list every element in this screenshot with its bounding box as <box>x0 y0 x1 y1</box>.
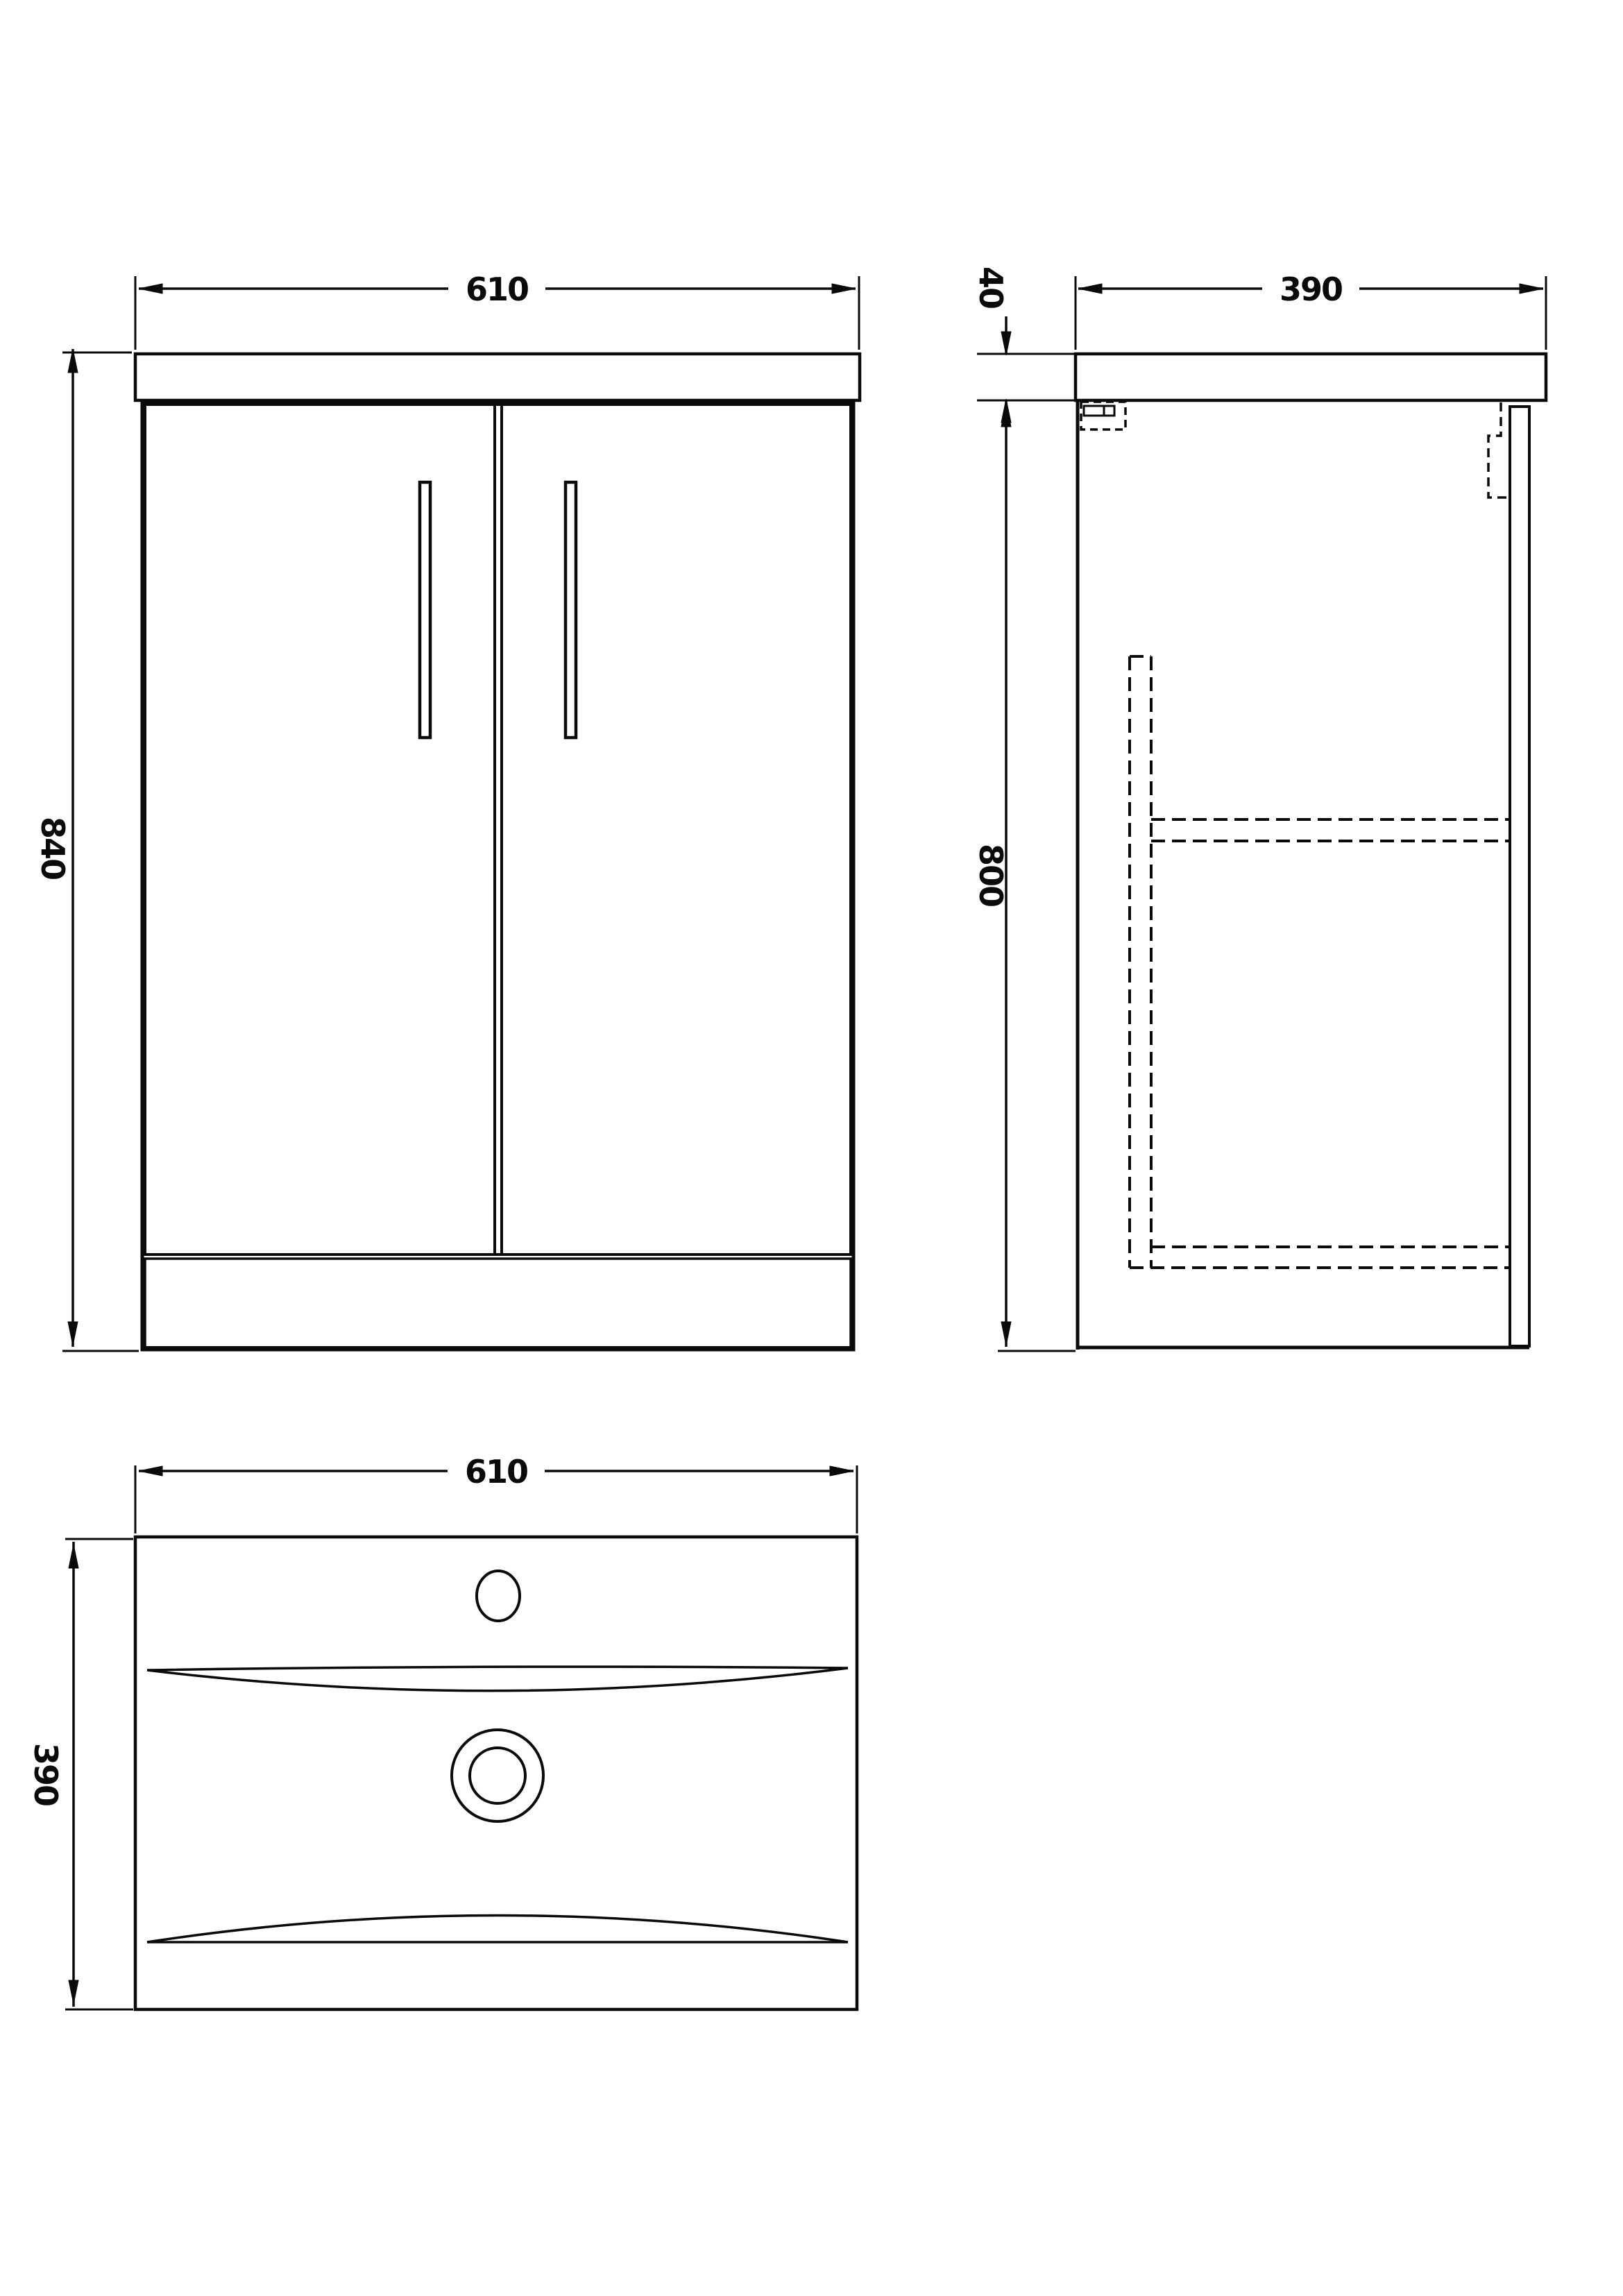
waste-outer-ring <box>452 1730 543 1821</box>
basin-front-edge-curve <box>147 1916 848 1943</box>
plan-width-dimension: 610 <box>135 1453 857 1533</box>
front-cabinet-body <box>142 402 853 1350</box>
front-width-label: 610 <box>466 271 528 308</box>
hinge-hidden-outline <box>1488 402 1510 498</box>
side-depth-label: 390 <box>1280 271 1342 308</box>
side-depth-dimension: 390 <box>1076 271 1546 350</box>
worktop-thickness-dimension: 40 <box>972 266 1074 423</box>
basin-rear-edge-curve <box>147 1668 848 1691</box>
right-door-handle <box>566 482 576 738</box>
tap-hole <box>477 1571 520 1621</box>
basin-rear-edge-top <box>147 1667 848 1670</box>
wall-bracket-plate <box>1084 406 1114 416</box>
front-elevation-view <box>135 354 860 1350</box>
waste-inner-ring <box>470 1748 525 1803</box>
side-elevation-view <box>1076 354 1546 1350</box>
side-door-panel <box>1510 407 1529 1346</box>
side-countertop <box>1076 354 1546 400</box>
front-doors <box>145 405 851 1255</box>
technical-drawing-canvas: 610 840 <box>0 0 1623 2296</box>
front-height-label: 840 <box>34 817 71 879</box>
carcass-height-label: 800 <box>972 844 1010 906</box>
front-countertop <box>135 354 860 400</box>
basin-plan-view <box>135 1537 857 2009</box>
left-door-handle <box>420 482 430 738</box>
carcass-height-dimension: 800 <box>972 400 1076 1351</box>
plan-width-label: 610 <box>465 1453 527 1490</box>
plan-depth-label: 390 <box>27 1743 65 1805</box>
drawing-sheet: 610 840 <box>0 0 1623 2296</box>
basin-outline <box>135 1537 857 2009</box>
plan-depth-dimension: 390 <box>27 1539 133 2009</box>
front-height-dimension: 840 <box>34 349 139 1351</box>
worktop-thickness-label: 40 <box>972 266 1010 308</box>
front-plinth <box>145 1259 851 1347</box>
front-width-dimension: 610 <box>135 271 859 350</box>
